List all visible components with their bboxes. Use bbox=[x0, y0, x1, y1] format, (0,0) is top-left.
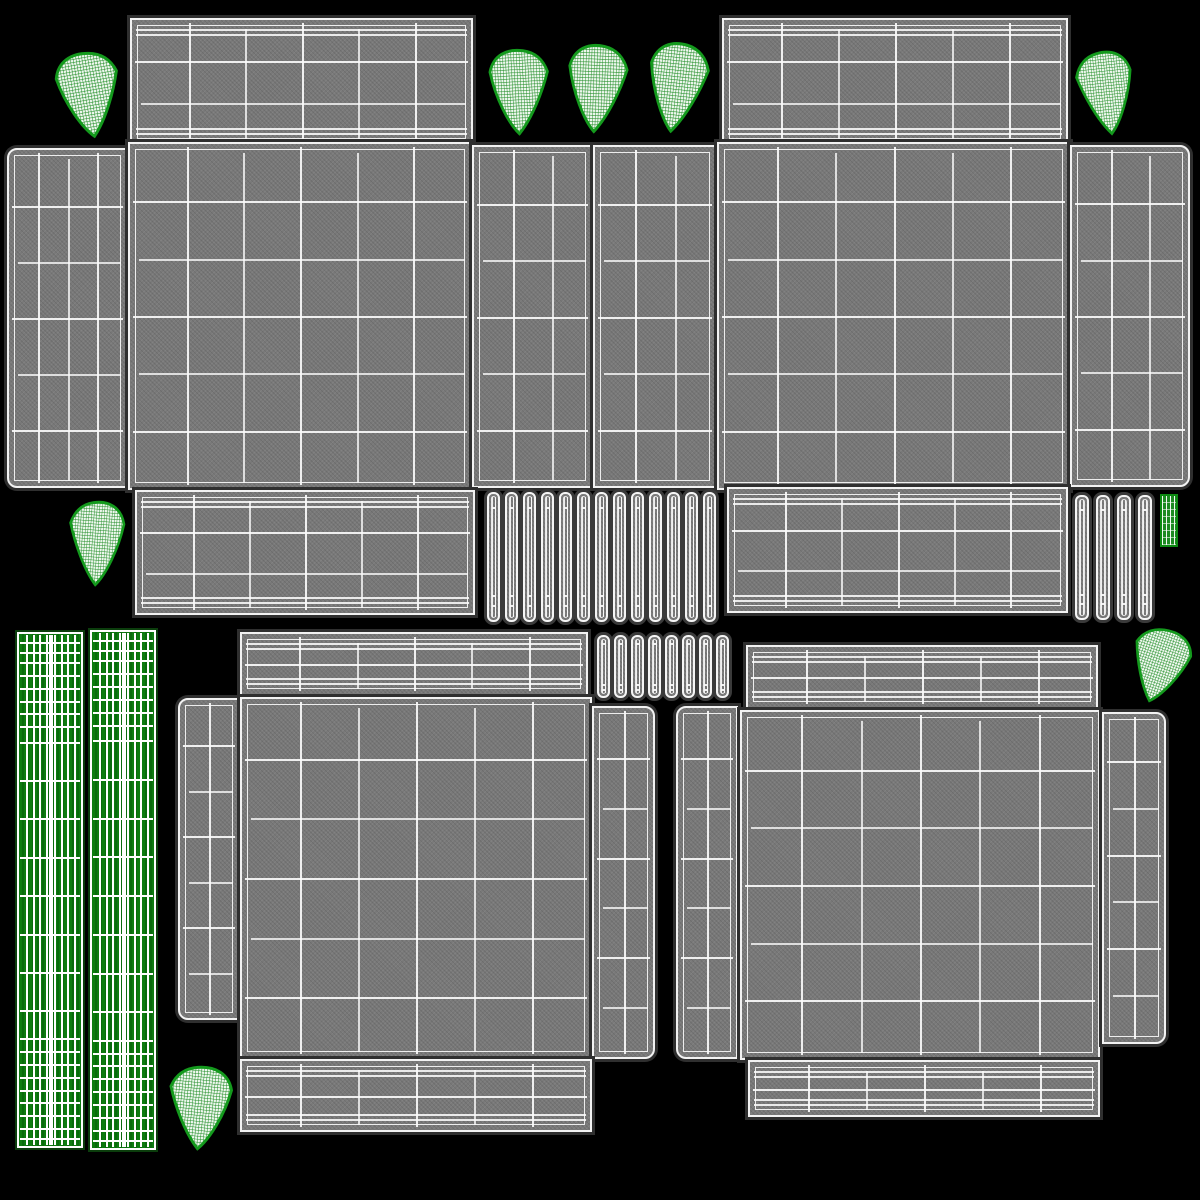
grid-line-horizontal bbox=[738, 570, 1061, 572]
fan-shell-path bbox=[1121, 622, 1197, 708]
grid-line-vertical bbox=[54, 635, 56, 1145]
grid-line-horizontal bbox=[20, 662, 80, 664]
grid-line-horizontal bbox=[93, 725, 153, 727]
grid-line-horizontal bbox=[753, 1089, 1095, 1091]
grid-line-horizontal bbox=[751, 943, 1093, 945]
grid-line-horizontal bbox=[687, 689, 690, 691]
uv-strip-small-mid-strip-row-2-3 bbox=[631, 635, 644, 698]
grid-line-vertical bbox=[546, 497, 547, 617]
grid-line-horizontal bbox=[1101, 603, 1105, 605]
grid-line-horizontal bbox=[722, 316, 1065, 318]
grid-line-vertical bbox=[26, 635, 28, 1145]
grid-line-horizontal bbox=[728, 373, 1063, 375]
grid-line-horizontal bbox=[93, 779, 153, 781]
uv-panel-d-top-flap bbox=[746, 645, 1098, 709]
grid-line-horizontal bbox=[751, 677, 1093, 679]
grid-line-vertical bbox=[513, 497, 514, 617]
grid-line-vertical bbox=[99, 633, 101, 1147]
grid-line-vertical bbox=[1122, 500, 1123, 615]
grid-line-horizontal bbox=[672, 595, 675, 597]
uv-panel-band-left-flap bbox=[7, 148, 128, 488]
uv-panel-d-bottom-flap bbox=[748, 1060, 1100, 1117]
grid-line-horizontal bbox=[598, 317, 712, 319]
uv-panel-a-central bbox=[128, 142, 472, 490]
grid-line-dense-top bbox=[754, 1071, 1094, 1073]
fan-shell-svg bbox=[480, 43, 557, 141]
grid-line-vertical bbox=[193, 495, 195, 610]
grid-line-horizontal bbox=[727, 61, 1063, 63]
grid-line-vertical bbox=[1143, 500, 1144, 615]
grid-line-horizontal bbox=[93, 740, 153, 742]
grid-line-horizontal bbox=[139, 259, 465, 261]
uv-strip-small-mid-strip-row-1-13 bbox=[703, 492, 716, 622]
grid-line-horizontal bbox=[681, 758, 733, 760]
grid-line-vertical bbox=[549, 497, 550, 617]
grid-line-horizontal bbox=[12, 206, 123, 208]
grid-line-horizontal bbox=[1107, 761, 1161, 763]
grid-line-horizontal bbox=[93, 1104, 153, 1106]
grid-line-horizontal bbox=[618, 605, 621, 607]
grid-line-horizontal bbox=[582, 595, 585, 597]
grid-line-horizontal bbox=[582, 605, 585, 607]
grid-line-vertical bbox=[302, 23, 304, 141]
grid-line-vertical bbox=[1101, 500, 1102, 615]
grid-line-horizontal bbox=[653, 684, 656, 686]
grid-line-horizontal bbox=[20, 652, 80, 654]
grid-line-dense-top bbox=[728, 34, 1062, 36]
grid-line-horizontal bbox=[133, 316, 467, 318]
grid-line-horizontal bbox=[20, 713, 80, 715]
uv-fan-shell-fan-top-mid-2 bbox=[558, 39, 633, 138]
grid-line-horizontal bbox=[670, 684, 673, 686]
uv-panel-a-top-flap bbox=[130, 18, 473, 146]
grid-line-vertical bbox=[624, 711, 626, 1054]
grid-line-vertical bbox=[564, 497, 565, 617]
grid-line-horizontal bbox=[690, 605, 693, 607]
grid-line-vertical bbox=[582, 497, 583, 617]
grid-line-horizontal bbox=[602, 643, 605, 645]
fan-shell-path bbox=[568, 45, 628, 133]
grid-line-dense-top bbox=[246, 643, 582, 645]
grid-line-horizontal bbox=[183, 836, 235, 838]
grid-line-horizontal bbox=[20, 675, 80, 677]
uv-strip-green-green-strip-1 bbox=[17, 632, 83, 1148]
grid-line-vertical bbox=[140, 633, 142, 1147]
uv-strip-small-mid-strip-row-2-2 bbox=[614, 635, 627, 698]
grid-line-horizontal bbox=[1122, 509, 1126, 511]
grid-line-dense-top bbox=[733, 503, 1062, 505]
grid-line-horizontal bbox=[245, 759, 587, 761]
grid-line-horizontal bbox=[618, 507, 621, 509]
grid-line-dense-top bbox=[728, 29, 1062, 31]
grid-line-horizontal bbox=[141, 103, 466, 105]
grid-line-horizontal bbox=[1122, 603, 1126, 605]
grid-line-horizontal bbox=[546, 507, 549, 509]
grid-line-horizontal bbox=[12, 430, 123, 432]
grid-line-horizontal bbox=[93, 895, 153, 897]
grid-line-vertical bbox=[209, 703, 211, 1015]
grid-line-horizontal bbox=[20, 742, 80, 744]
grid-line-horizontal bbox=[93, 1117, 153, 1119]
grid-line-horizontal bbox=[93, 1065, 153, 1067]
grid-line-horizontal bbox=[20, 1138, 80, 1140]
grid-line-dense-top bbox=[733, 498, 1062, 500]
uv-panel-b-bottom-flap bbox=[727, 487, 1068, 613]
grid-line-vertical bbox=[1146, 500, 1147, 615]
grid-line-dense-bottom bbox=[246, 1114, 586, 1116]
grid-line-horizontal bbox=[687, 1007, 731, 1009]
grid-line-dense-top bbox=[246, 1075, 586, 1077]
grid-line-vertical bbox=[675, 497, 676, 617]
grid-line-horizontal bbox=[189, 882, 233, 884]
grid-line-horizontal bbox=[245, 997, 587, 999]
grid-line-horizontal bbox=[597, 957, 650, 959]
grid-line-horizontal bbox=[690, 595, 693, 597]
grid-line-vertical bbox=[361, 501, 363, 608]
grid-line-horizontal bbox=[751, 827, 1093, 829]
grid-line-horizontal bbox=[708, 507, 711, 509]
grid-line-vertical bbox=[711, 497, 712, 617]
uv-rect-green bbox=[1160, 494, 1178, 547]
grid-line-horizontal bbox=[492, 605, 495, 607]
grid-line-horizontal bbox=[140, 532, 470, 534]
grid-line-horizontal bbox=[93, 1078, 153, 1080]
grid-line-horizontal bbox=[1080, 509, 1084, 511]
grid-line-vertical bbox=[693, 497, 694, 617]
grid-line-horizontal bbox=[604, 260, 710, 262]
grid-line-horizontal bbox=[93, 640, 153, 642]
grid-line-horizontal bbox=[93, 1091, 153, 1093]
uv-fan-shell-fan-right-mid bbox=[1114, 616, 1200, 716]
grid-line-vertical bbox=[474, 1070, 476, 1125]
grid-line-horizontal bbox=[93, 686, 153, 688]
fan-shell-path bbox=[489, 49, 551, 135]
grid-line-horizontal bbox=[598, 430, 712, 432]
uv-panel-b-right-flap bbox=[1070, 145, 1190, 487]
fan-shell-path bbox=[165, 1064, 234, 1151]
grid-line-dense-top bbox=[752, 656, 1092, 658]
grid-line-vertical bbox=[895, 23, 897, 141]
grid-line-vertical bbox=[492, 497, 493, 617]
grid-line-horizontal bbox=[93, 818, 153, 820]
grid-line-dense-top bbox=[136, 29, 467, 31]
uv-strip-small-right-strip-col-3 bbox=[1117, 495, 1131, 620]
grid-line-horizontal bbox=[619, 684, 622, 686]
grid-line-horizontal bbox=[245, 878, 587, 880]
grid-line-horizontal bbox=[20, 1128, 80, 1130]
grid-line-horizontal bbox=[636, 507, 639, 509]
grid-line-horizontal bbox=[183, 927, 235, 929]
grid-line-horizontal bbox=[745, 885, 1095, 887]
grid-line-horizontal bbox=[598, 204, 712, 206]
grid-line-horizontal bbox=[133, 201, 467, 203]
uv-strip-small-right-strip-col-1 bbox=[1075, 495, 1089, 620]
fan-shell-path bbox=[66, 500, 125, 586]
grid-line-horizontal bbox=[133, 431, 467, 433]
grid-line-horizontal bbox=[1143, 603, 1147, 605]
grid-line-horizontal bbox=[93, 1130, 153, 1132]
grid-line-horizontal bbox=[20, 688, 80, 690]
uv-panel-d-central bbox=[740, 710, 1100, 1060]
uv-strip-small-mid-strip-row-2-8 bbox=[716, 635, 729, 698]
uv-panel-c-top-flap bbox=[240, 632, 588, 696]
grid-line-vertical bbox=[147, 633, 149, 1147]
grid-line-horizontal bbox=[704, 684, 707, 686]
grid-line-horizontal bbox=[245, 664, 583, 666]
grid-line-horizontal bbox=[146, 573, 468, 575]
grid-line-dense-bottom bbox=[752, 691, 1092, 693]
grid-line-vertical bbox=[585, 497, 586, 617]
grid-line-dense-top bbox=[246, 648, 582, 650]
grid-line-horizontal bbox=[687, 684, 690, 686]
grid-line-horizontal bbox=[1113, 901, 1159, 903]
grid-line-vertical bbox=[33, 635, 35, 1145]
grid-line-horizontal bbox=[728, 259, 1063, 261]
grid-line-horizontal bbox=[20, 1090, 80, 1092]
uv-fan-shell-fan-left-mid bbox=[61, 495, 134, 592]
uv-strip-small-mid-strip-row-1-10 bbox=[649, 492, 662, 622]
grid-line-vertical bbox=[898, 492, 900, 608]
grid-line-horizontal bbox=[1080, 603, 1084, 605]
fan-shell-svg bbox=[1068, 44, 1145, 143]
grid-line-horizontal bbox=[600, 605, 603, 607]
grid-line-vertical bbox=[39, 635, 41, 1145]
grid-line-vertical bbox=[249, 501, 251, 608]
fan-shell-svg bbox=[61, 495, 134, 592]
uv-fan-shell-fan-bottom-left bbox=[158, 1058, 243, 1157]
grid-line-horizontal bbox=[477, 317, 588, 319]
grid-line-vertical bbox=[636, 497, 637, 617]
uv-strip-small-mid-strip-row-2-6 bbox=[682, 635, 695, 698]
grid-line-horizontal bbox=[1101, 594, 1105, 596]
grid-line-horizontal bbox=[745, 770, 1095, 772]
grid-line-dense-bottom bbox=[246, 683, 582, 685]
grid-line-vertical bbox=[189, 23, 191, 141]
grid-line-vertical bbox=[657, 497, 658, 617]
grid-line-vertical bbox=[358, 1070, 360, 1125]
grid-line-horizontal bbox=[18, 374, 121, 376]
uv-strip-small-mid-strip-row-2-7 bbox=[699, 635, 712, 698]
grid-line-vertical bbox=[707, 711, 709, 1054]
grid-line-vertical bbox=[1104, 500, 1105, 615]
uv-panel-b-central bbox=[717, 142, 1070, 490]
grid-line-vertical bbox=[600, 497, 601, 617]
uv-strip-small-right-strip-col-2 bbox=[1096, 495, 1110, 620]
grid-line-vertical bbox=[567, 497, 568, 617]
grid-line-vertical bbox=[621, 497, 622, 617]
grid-line-horizontal bbox=[546, 605, 549, 607]
grid-line-horizontal bbox=[687, 808, 731, 810]
fan-shell-path bbox=[645, 41, 711, 134]
grid-line-horizontal bbox=[619, 689, 622, 691]
grid-line-horizontal bbox=[189, 791, 233, 793]
grid-line-horizontal bbox=[653, 689, 656, 691]
grid-line-horizontal bbox=[510, 595, 513, 597]
grid-line-horizontal bbox=[670, 689, 673, 691]
grid-line-horizontal bbox=[604, 373, 710, 375]
grid-line-vertical bbox=[134, 633, 136, 1147]
grid-line-horizontal bbox=[510, 507, 513, 509]
grid-line-horizontal bbox=[546, 595, 549, 597]
grid-line-dense-bottom bbox=[728, 133, 1062, 135]
grid-line-horizontal bbox=[670, 643, 673, 645]
grid-line-horizontal bbox=[93, 973, 153, 975]
grid-line-horizontal bbox=[672, 605, 675, 607]
grid-line-horizontal bbox=[619, 643, 622, 645]
fan-shell-svg bbox=[158, 1058, 243, 1157]
grid-line-vertical bbox=[61, 635, 63, 1145]
grid-line-dense-top bbox=[246, 1070, 586, 1072]
grid-line-horizontal bbox=[93, 660, 153, 662]
grid-line-vertical bbox=[781, 23, 783, 141]
grid-line-vertical bbox=[127, 633, 129, 1147]
grid-line-horizontal bbox=[654, 605, 657, 607]
grid-line-horizontal bbox=[690, 507, 693, 509]
grid-line-vertical bbox=[305, 495, 307, 610]
grid-line-dense-top bbox=[754, 1076, 1094, 1078]
grid-line-dense-top bbox=[141, 506, 469, 508]
grid-line-vertical bbox=[690, 497, 691, 617]
grid-line-horizontal bbox=[681, 858, 733, 860]
grid-line-horizontal bbox=[1101, 509, 1105, 511]
grid-line-horizontal bbox=[1113, 808, 1159, 810]
grid-line-horizontal bbox=[722, 431, 1065, 433]
grid-line-horizontal bbox=[20, 934, 80, 936]
grid-line-horizontal bbox=[20, 1077, 80, 1079]
grid-line-horizontal bbox=[732, 530, 1063, 532]
fan-shell-svg bbox=[42, 42, 133, 148]
grid-line-vertical bbox=[46, 635, 48, 1145]
grid-line-vertical bbox=[618, 497, 619, 617]
fan-shell-svg bbox=[1114, 616, 1200, 716]
grid-line-horizontal bbox=[636, 605, 639, 607]
grid-line-horizontal bbox=[20, 642, 80, 644]
grid-line-horizontal bbox=[135, 61, 468, 63]
grid-line-dense-bottom bbox=[754, 1099, 1094, 1101]
grid-line-dense-bottom bbox=[141, 602, 469, 604]
grid-line-horizontal bbox=[93, 699, 153, 701]
grid-line-horizontal bbox=[189, 973, 233, 975]
grid-line-horizontal bbox=[602, 689, 605, 691]
grid-line-vertical bbox=[1010, 492, 1012, 608]
grid-line-horizontal bbox=[654, 595, 657, 597]
grid-line-horizontal bbox=[20, 1115, 80, 1117]
grid-line-horizontal bbox=[20, 1064, 80, 1066]
uv-strip-small-right-strip-col-4 bbox=[1138, 495, 1152, 620]
uv-strip-small-mid-strip-row-1-9 bbox=[631, 492, 644, 622]
grid-line-horizontal bbox=[1122, 594, 1126, 596]
grid-line-vertical bbox=[119, 633, 121, 1147]
grid-line-horizontal bbox=[603, 1007, 648, 1009]
grid-line-vertical bbox=[952, 29, 954, 139]
grid-line-horizontal bbox=[687, 643, 690, 645]
grid-line-horizontal bbox=[20, 818, 80, 820]
grid-line-dense-bottom bbox=[136, 128, 467, 130]
grid-line-horizontal bbox=[1080, 594, 1084, 596]
grid-line-horizontal bbox=[477, 204, 588, 206]
grid-line-dense-top bbox=[136, 34, 467, 36]
grid-line-horizontal bbox=[1075, 203, 1185, 205]
grid-line-vertical bbox=[954, 498, 956, 606]
grid-line-horizontal bbox=[636, 684, 639, 686]
grid-line-dense-bottom bbox=[733, 600, 1062, 602]
grid-line-vertical bbox=[112, 633, 114, 1147]
grid-line-vertical bbox=[528, 497, 529, 617]
grid-line-horizontal bbox=[600, 507, 603, 509]
grid-line-horizontal bbox=[1081, 372, 1183, 374]
grid-line-horizontal bbox=[636, 595, 639, 597]
grid-line-horizontal bbox=[745, 1000, 1095, 1002]
grid-line-horizontal bbox=[93, 1040, 153, 1042]
grid-line-horizontal bbox=[636, 643, 639, 645]
grid-line-horizontal bbox=[602, 684, 605, 686]
grid-line-vertical bbox=[672, 497, 673, 617]
grid-line-horizontal bbox=[653, 643, 656, 645]
grid-line-horizontal bbox=[20, 895, 80, 897]
grid-line-horizontal bbox=[251, 818, 585, 820]
grid-line-dense-bottom bbox=[728, 128, 1062, 130]
uv-strip-small-mid-strip-row-2-4 bbox=[648, 635, 661, 698]
grid-line-horizontal bbox=[251, 938, 585, 940]
grid-line-horizontal bbox=[20, 1010, 80, 1012]
uv-strip-small-mid-strip-row-1-3 bbox=[523, 492, 536, 622]
uv-panel-d-right-flap bbox=[1102, 712, 1166, 1044]
grid-line-horizontal bbox=[93, 673, 153, 675]
grid-line-horizontal bbox=[20, 780, 80, 782]
grid-line-horizontal bbox=[93, 856, 153, 858]
grid-line-vertical bbox=[1125, 500, 1126, 615]
fan-shell-svg bbox=[635, 35, 717, 141]
grid-line-horizontal bbox=[721, 689, 724, 691]
grid-line-horizontal bbox=[477, 430, 588, 432]
grid-line-vertical bbox=[74, 635, 76, 1145]
grid-line-dense-bottom bbox=[752, 696, 1092, 698]
grid-line-vertical bbox=[841, 498, 843, 606]
grid-line-horizontal bbox=[597, 758, 650, 760]
green-strip-center-divider bbox=[49, 635, 53, 1145]
grid-line-horizontal bbox=[93, 1053, 153, 1055]
grid-line-vertical bbox=[531, 497, 532, 617]
grid-line-dense-bottom bbox=[246, 678, 582, 680]
grid-line-horizontal bbox=[681, 957, 733, 959]
grid-line-horizontal bbox=[1143, 509, 1147, 511]
grid-line-vertical bbox=[785, 492, 787, 608]
uv-texture-layout bbox=[0, 0, 1200, 1200]
grid-line-horizontal bbox=[1107, 855, 1161, 857]
grid-line-horizontal bbox=[564, 595, 567, 597]
grid-line-horizontal bbox=[687, 907, 731, 909]
grid-line-vertical bbox=[639, 497, 640, 617]
grid-line-vertical bbox=[708, 497, 709, 617]
grid-line-dense-bottom bbox=[141, 597, 469, 599]
uv-fan-shell-fan-top-right bbox=[1068, 44, 1145, 143]
grid-line-vertical bbox=[495, 497, 496, 617]
grid-line-vertical bbox=[415, 23, 417, 141]
grid-line-horizontal bbox=[564, 605, 567, 607]
uv-strip-small-mid-strip-row-2-1 bbox=[597, 635, 610, 698]
grid-line-vertical bbox=[106, 633, 108, 1147]
grid-line-horizontal bbox=[183, 745, 235, 747]
uv-strip-small-mid-strip-row-1-7 bbox=[595, 492, 608, 622]
grid-line-horizontal bbox=[483, 373, 586, 375]
grid-line-horizontal bbox=[93, 712, 153, 714]
uv-fan-shell-fan-top-mid-3 bbox=[635, 35, 717, 141]
grid-line-horizontal bbox=[636, 689, 639, 691]
grid-line-vertical bbox=[1134, 717, 1136, 1039]
grid-line-vertical bbox=[510, 497, 511, 617]
grid-line-horizontal bbox=[672, 507, 675, 509]
grid-line-horizontal bbox=[93, 650, 153, 652]
